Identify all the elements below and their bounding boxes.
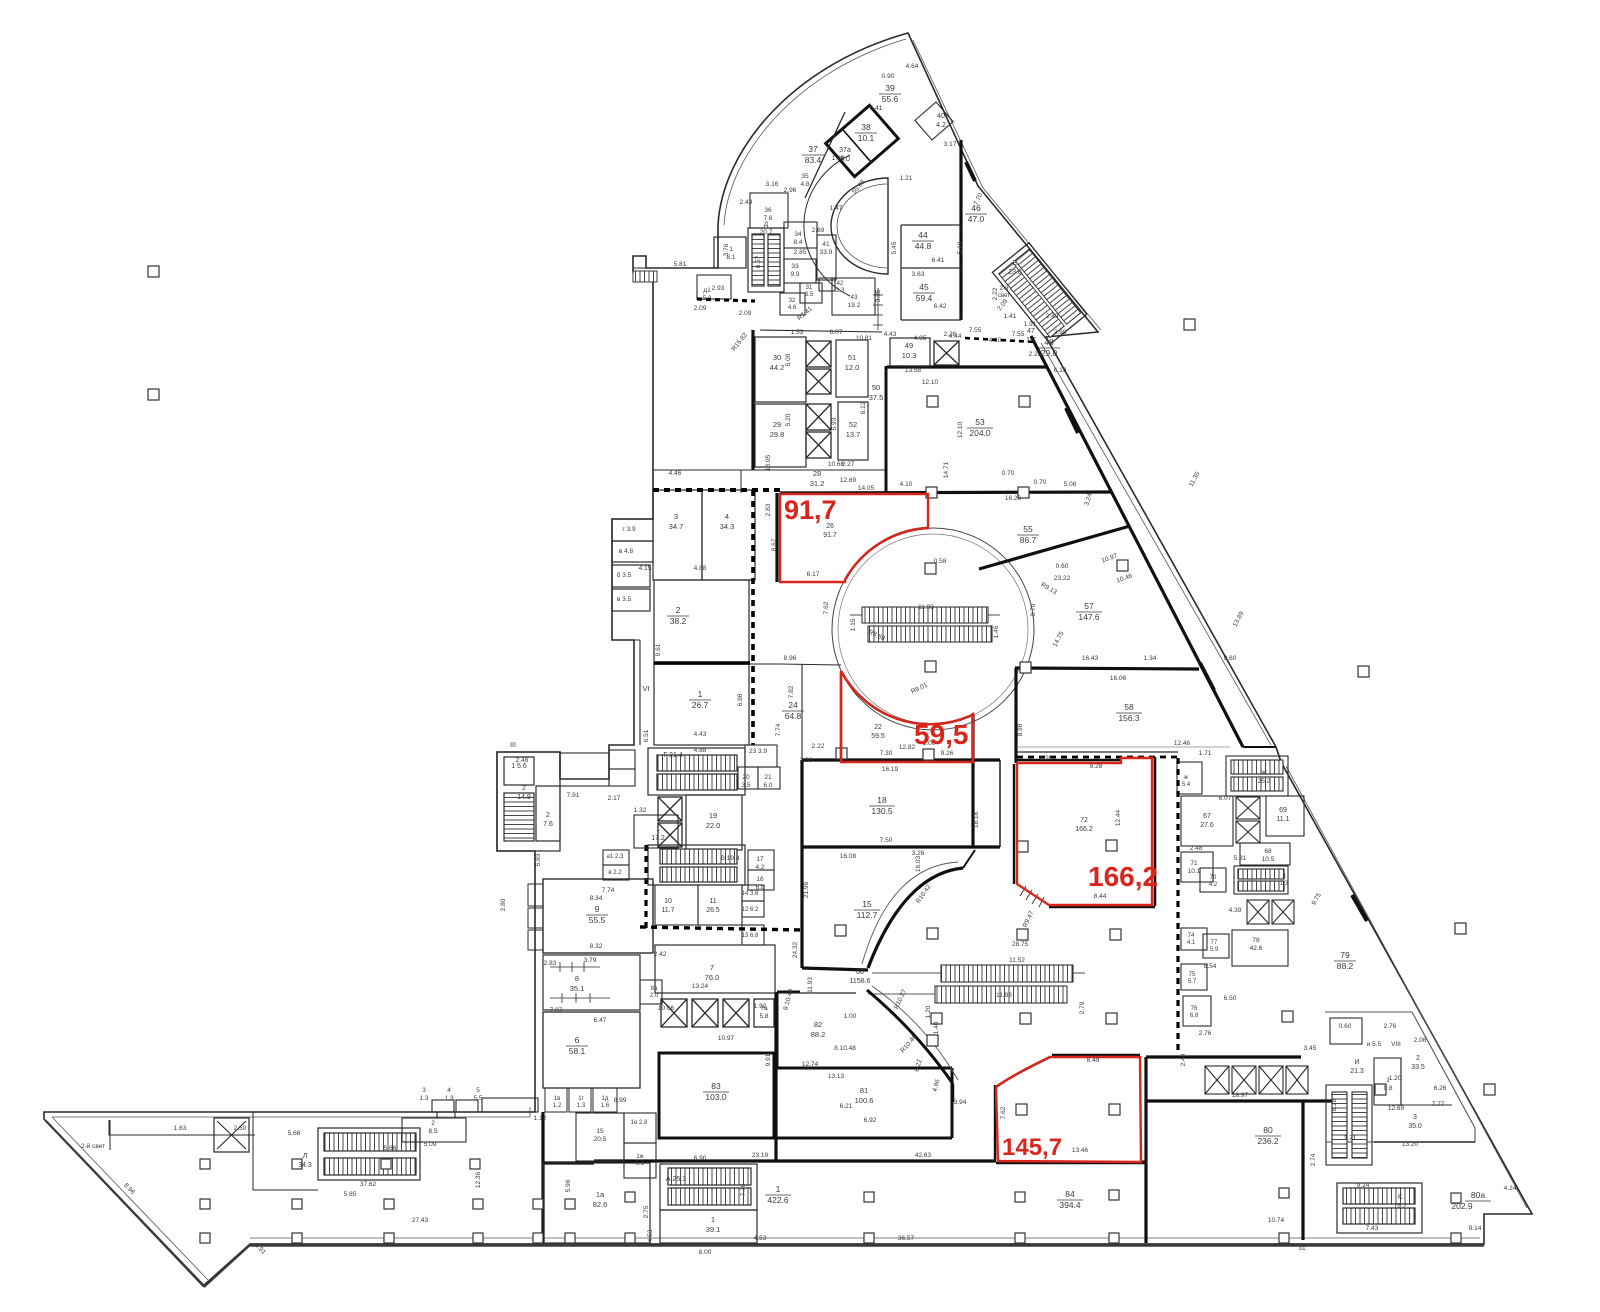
svg-text:2.48: 2.48 bbox=[1190, 845, 1203, 852]
svg-text:21.96: 21.96 bbox=[803, 881, 810, 898]
svg-text:64.8: 64.8 bbox=[785, 711, 802, 721]
svg-text:8.49: 8.49 bbox=[1087, 1057, 1100, 1064]
svg-text:2.09: 2.09 bbox=[739, 310, 752, 317]
svg-text:12.10: 12.10 bbox=[957, 421, 964, 438]
svg-text:4.95: 4.95 bbox=[914, 335, 927, 342]
svg-text:37.5: 37.5 bbox=[869, 393, 884, 402]
svg-text:3.16: 3.16 bbox=[766, 181, 779, 188]
svg-text:23.19: 23.19 bbox=[752, 1152, 769, 1159]
svg-text:4: 4 bbox=[447, 1087, 451, 1094]
svg-text:6.12: 6.12 bbox=[860, 401, 867, 414]
svg-text:47.0: 47.0 bbox=[968, 214, 985, 224]
svg-text:38.2: 38.2 bbox=[670, 616, 687, 626]
svg-text:7.82: 7.82 bbox=[788, 685, 795, 698]
svg-text:31.2: 31.2 bbox=[810, 479, 825, 488]
svg-text:20.5: 20.5 bbox=[594, 1136, 607, 1143]
svg-text:2.38: 2.38 bbox=[800, 757, 813, 764]
svg-text:III: III bbox=[510, 742, 516, 749]
svg-text:52: 52 bbox=[849, 420, 857, 429]
svg-text:8.4: 8.4 bbox=[793, 239, 802, 246]
svg-text:76: 76 bbox=[1191, 1006, 1198, 1012]
svg-text:9.91: 9.91 bbox=[765, 1053, 772, 1066]
svg-text:166,2: 166,2 bbox=[1088, 861, 1158, 892]
svg-text:2: 2 bbox=[431, 1120, 435, 1127]
svg-text:91.7: 91.7 bbox=[823, 532, 837, 539]
svg-text:1: 1 bbox=[698, 689, 703, 699]
svg-text:60: 60 bbox=[856, 969, 864, 976]
svg-text:7.55: 7.55 bbox=[1012, 331, 1025, 338]
svg-text:82: 82 bbox=[814, 1020, 822, 1029]
svg-text:2.49: 2.49 bbox=[1046, 313, 1059, 320]
svg-text:4: 4 bbox=[725, 512, 729, 521]
svg-text:19.2: 19.2 bbox=[848, 302, 861, 309]
svg-text:17: 17 bbox=[756, 856, 764, 863]
svg-text:42.6: 42.6 bbox=[1250, 945, 1263, 952]
svg-text:1.53: 1.53 bbox=[791, 329, 804, 336]
svg-text:4.1: 4.1 bbox=[1187, 940, 1196, 946]
svg-text:2: 2 bbox=[522, 785, 526, 792]
svg-text:53: 53 bbox=[975, 417, 985, 427]
svg-text:112.7: 112.7 bbox=[857, 910, 878, 920]
svg-text:2.50: 2.50 bbox=[234, 1125, 247, 1132]
svg-text:8.96: 8.96 bbox=[784, 655, 797, 662]
svg-text:2-й: 2-й bbox=[1000, 285, 1009, 292]
svg-text:7.62: 7.62 bbox=[1000, 1106, 1007, 1119]
svg-text:1а: 1а bbox=[596, 1190, 605, 1199]
svg-text:16.19: 16.19 bbox=[882, 766, 899, 773]
svg-text:70: 70 bbox=[1210, 875, 1217, 881]
svg-text:15: 15 bbox=[596, 1128, 604, 1135]
svg-text:10.1: 10.1 bbox=[1188, 868, 1201, 875]
svg-text:4.88: 4.88 bbox=[694, 565, 707, 572]
svg-text:34.3: 34.3 bbox=[298, 1162, 312, 1169]
svg-text:394.4: 394.4 bbox=[1059, 1200, 1081, 1210]
svg-text:5.45: 5.45 bbox=[891, 241, 898, 254]
svg-text:и 5.5: и 5.5 bbox=[1367, 1041, 1382, 1048]
svg-text:13.13: 13.13 bbox=[828, 1073, 845, 1080]
svg-text:32: 32 bbox=[789, 298, 796, 304]
svg-text:6.47: 6.47 bbox=[594, 1017, 607, 1024]
svg-text:6.0: 6.0 bbox=[763, 782, 772, 789]
svg-text:33: 33 bbox=[791, 263, 799, 270]
svg-text:3.5: 3.5 bbox=[805, 292, 814, 298]
svg-text:18.18: 18.18 bbox=[973, 811, 980, 828]
svg-text:86.7: 86.7 bbox=[1020, 535, 1037, 545]
svg-text:18.97: 18.97 bbox=[1232, 1092, 1249, 1099]
svg-text:B 19.4: B 19.4 bbox=[721, 855, 740, 862]
svg-text:34: 34 bbox=[794, 231, 802, 238]
svg-text:4.43: 4.43 bbox=[884, 331, 897, 338]
svg-text:27.43: 27.43 bbox=[412, 1217, 429, 1224]
svg-text:5.20: 5.20 bbox=[785, 413, 792, 426]
svg-text:5.3: 5.3 bbox=[702, 295, 711, 302]
svg-text:36: 36 bbox=[764, 207, 772, 214]
svg-text:5.66: 5.66 bbox=[384, 1145, 397, 1152]
svg-text:18.05: 18.05 bbox=[765, 454, 772, 471]
svg-text:8.54: 8.54 bbox=[1204, 963, 1217, 970]
svg-text:12.46: 12.46 bbox=[1174, 740, 1191, 747]
svg-text:9: 9 bbox=[595, 904, 600, 914]
svg-text:2.44: 2.44 bbox=[1180, 1053, 1187, 1066]
svg-text:4.43: 4.43 bbox=[694, 731, 707, 738]
svg-text:5.83: 5.83 bbox=[535, 853, 542, 866]
svg-text:83: 83 bbox=[711, 1081, 721, 1091]
svg-text:1.47: 1.47 bbox=[830, 205, 843, 212]
svg-text:2.76: 2.76 bbox=[1199, 1030, 1212, 1037]
svg-text:40: 40 bbox=[937, 113, 945, 120]
svg-text:5.8: 5.8 bbox=[759, 1013, 768, 1020]
svg-text:12.69: 12.69 bbox=[1388, 1105, 1405, 1112]
svg-text:1.00: 1.00 bbox=[844, 1013, 857, 1020]
svg-text:1.3: 1.3 bbox=[419, 1095, 428, 1102]
svg-text:Г 21.4: Г 21.4 bbox=[663, 752, 682, 759]
svg-text:6.41: 6.41 bbox=[870, 105, 883, 112]
svg-text:1: 1 bbox=[776, 1184, 781, 1194]
svg-text:6.51: 6.51 bbox=[643, 729, 650, 742]
svg-text:2-й свет: 2-й свет bbox=[81, 1142, 105, 1150]
svg-text:0.60: 0.60 bbox=[1056, 563, 1069, 570]
svg-text:6.50: 6.50 bbox=[1224, 995, 1237, 1002]
svg-text:24: 24 bbox=[788, 700, 798, 710]
svg-text:20.7: 20.7 bbox=[760, 229, 773, 236]
svg-text:6.90: 6.90 bbox=[694, 1155, 707, 1162]
svg-text:3.5: 3.5 bbox=[741, 782, 750, 789]
svg-text:5.08: 5.08 bbox=[1064, 481, 1077, 488]
svg-text:2: 2 bbox=[1416, 1055, 1420, 1062]
svg-text:91,7: 91,7 bbox=[784, 495, 837, 525]
svg-text:37.62: 37.62 bbox=[360, 1181, 377, 1188]
svg-text:ж: ж bbox=[1184, 775, 1188, 781]
svg-text:88.2: 88.2 bbox=[1337, 961, 1354, 971]
svg-text:69: 69 bbox=[1279, 807, 1287, 814]
svg-text:28.75: 28.75 bbox=[1012, 941, 1029, 948]
svg-text:И: И bbox=[1354, 1059, 1359, 1066]
svg-text:4.2: 4.2 bbox=[1209, 882, 1218, 888]
svg-text:9.14: 9.14 bbox=[1357, 1182, 1370, 1189]
svg-text:3.94: 3.94 bbox=[954, 1099, 967, 1106]
svg-text:44.8: 44.8 bbox=[915, 241, 932, 251]
svg-text:2.85: 2.85 bbox=[794, 249, 807, 256]
svg-text:5.5: 5.5 bbox=[473, 1095, 482, 1102]
svg-text:5.09: 5.09 bbox=[785, 353, 792, 366]
svg-text:3.76: 3.76 bbox=[723, 243, 730, 256]
svg-text:4.2: 4.2 bbox=[755, 864, 764, 871]
svg-text:236.2: 236.2 bbox=[1257, 1136, 1279, 1146]
svg-text:1.3: 1.3 bbox=[444, 1095, 453, 1102]
svg-text:8а: 8а bbox=[651, 986, 658, 992]
svg-text:44.2: 44.2 bbox=[770, 363, 785, 372]
svg-text:20: 20 bbox=[742, 774, 750, 781]
svg-text:39: 39 bbox=[885, 83, 895, 93]
svg-text:в 2.2: в 2.2 bbox=[608, 870, 622, 876]
svg-text:9.9: 9.9 bbox=[790, 271, 799, 278]
svg-text:5.19: 5.19 bbox=[957, 241, 964, 254]
svg-text:12.0: 12.0 bbox=[845, 363, 860, 372]
svg-text:47: 47 bbox=[1027, 328, 1035, 335]
svg-text:13.24: 13.24 bbox=[692, 983, 709, 990]
svg-text:100.6: 100.6 bbox=[855, 1096, 874, 1105]
svg-text:1в: 1в bbox=[554, 1096, 561, 1102]
svg-text:7: 7 bbox=[710, 963, 714, 972]
svg-text:4.10: 4.10 bbox=[989, 337, 1002, 344]
svg-text:23 3.9: 23 3.9 bbox=[749, 748, 767, 755]
svg-text:16.08: 16.08 bbox=[840, 853, 857, 860]
svg-text:12.69: 12.69 bbox=[840, 477, 857, 484]
svg-text:88.2: 88.2 bbox=[811, 1030, 826, 1039]
svg-text:8.98: 8.98 bbox=[1017, 723, 1024, 736]
svg-text:0.58: 0.58 bbox=[934, 558, 947, 565]
svg-text:76.0: 76.0 bbox=[705, 973, 720, 982]
svg-text:4.15: 4.15 bbox=[639, 565, 652, 572]
svg-text:42: 42 bbox=[837, 281, 844, 287]
svg-text:6: 6 bbox=[575, 1035, 580, 1045]
svg-text:2.17: 2.17 bbox=[608, 795, 621, 802]
svg-text:1: 1 bbox=[656, 826, 660, 833]
svg-text:1.7: 1.7 bbox=[1026, 337, 1036, 344]
svg-text:9.61: 9.61 bbox=[655, 643, 662, 656]
svg-text:1 5.6: 1 5.6 bbox=[511, 763, 527, 770]
svg-text:14.71: 14.71 bbox=[943, 461, 950, 478]
svg-text:39.1: 39.1 bbox=[706, 1225, 721, 1234]
svg-text:3: 3 bbox=[1413, 1114, 1417, 1121]
svg-text:84: 84 bbox=[1065, 1189, 1075, 1199]
svg-text:в 4.8: в 4.8 bbox=[619, 548, 634, 555]
svg-text:а1 2.3: а1 2.3 bbox=[607, 854, 624, 860]
svg-text:82.6: 82.6 bbox=[593, 1200, 608, 1209]
svg-text:13 6.8: 13 6.8 bbox=[742, 933, 759, 939]
svg-text:2: 2 bbox=[546, 812, 550, 819]
svg-text:8.67: 8.67 bbox=[771, 538, 778, 551]
svg-text:6.92: 6.92 bbox=[864, 1117, 877, 1124]
svg-text:16: 16 bbox=[756, 876, 764, 883]
svg-text:50: 50 bbox=[872, 383, 880, 392]
svg-text:67: 67 bbox=[1203, 813, 1211, 820]
svg-text:33.5: 33.5 bbox=[1411, 1064, 1425, 1071]
svg-text:8.99: 8.99 bbox=[614, 1097, 627, 1104]
svg-text:1.15: 1.15 bbox=[850, 618, 857, 631]
svg-text:29.8: 29.8 bbox=[770, 430, 785, 439]
svg-text:1.21: 1.21 bbox=[900, 175, 913, 182]
svg-text:2.22: 2.22 bbox=[992, 287, 999, 300]
svg-text:80а: 80а bbox=[1471, 1190, 1485, 1200]
svg-text:3.26: 3.26 bbox=[912, 850, 925, 857]
svg-text:10.1: 10.1 bbox=[858, 133, 875, 143]
svg-text:1.3: 1.3 bbox=[1280, 881, 1289, 887]
svg-text:103.0: 103.0 bbox=[705, 1092, 727, 1102]
svg-text:11: 11 bbox=[709, 898, 716, 905]
svg-text:14.9: 14.9 bbox=[517, 794, 531, 801]
svg-text:7.76: 7.76 bbox=[740, 1183, 747, 1196]
svg-text:45: 45 bbox=[919, 282, 929, 292]
svg-text:2: 2 bbox=[676, 605, 681, 615]
svg-text:78: 78 bbox=[1252, 937, 1260, 944]
svg-text:0.70: 0.70 bbox=[1002, 470, 1015, 477]
svg-text:5.96: 5.96 bbox=[565, 1179, 572, 1192]
svg-text:8.32: 8.32 bbox=[590, 943, 603, 950]
svg-text:1.40: 1.40 bbox=[933, 1021, 940, 1034]
svg-text:1г: 1г bbox=[578, 1096, 584, 1102]
svg-text:7.43: 7.43 bbox=[1366, 1225, 1379, 1232]
svg-text:9.26: 9.26 bbox=[941, 750, 954, 757]
svg-text:166.2: 166.2 bbox=[1075, 826, 1093, 833]
svg-text:5.4: 5.4 bbox=[1182, 782, 1191, 788]
svg-text:12.82: 12.82 bbox=[899, 744, 916, 751]
svg-text:23.8: 23.8 bbox=[1008, 269, 1022, 276]
svg-text:1.12: 1.12 bbox=[534, 1115, 547, 1122]
svg-text:13.20: 13.20 bbox=[1402, 1141, 1419, 1148]
svg-text:5.81: 5.81 bbox=[674, 261, 687, 268]
svg-text:д1: д1 bbox=[703, 287, 711, 294]
svg-text:34.7: 34.7 bbox=[669, 522, 684, 531]
svg-text:7.62: 7.62 bbox=[823, 601, 830, 614]
svg-text:77: 77 bbox=[1211, 940, 1218, 946]
svg-text:75: 75 bbox=[1189, 972, 1196, 978]
svg-text:4.44: 4.44 bbox=[949, 333, 962, 340]
svg-text:1.3: 1.3 bbox=[577, 1103, 586, 1109]
svg-text:3.28: 3.28 bbox=[1040, 755, 1053, 762]
svg-text:9.28: 9.28 bbox=[1090, 763, 1103, 770]
svg-text:0.60: 0.60 bbox=[1224, 655, 1237, 662]
svg-text:5: 5 bbox=[476, 1087, 480, 1094]
svg-text:VI: VI bbox=[642, 684, 649, 693]
svg-text:3: 3 bbox=[422, 1087, 426, 1094]
svg-text:49: 49 bbox=[905, 341, 913, 350]
svg-text:8.44: 8.44 bbox=[1094, 893, 1107, 900]
svg-text:17.2: 17.2 bbox=[651, 835, 665, 842]
svg-text:3.17: 3.17 bbox=[944, 141, 957, 148]
svg-text:1е 2.8: 1е 2.8 bbox=[631, 1120, 648, 1126]
svg-text:5.1: 5.1 bbox=[636, 1161, 645, 1167]
svg-text:3.35: 3.35 bbox=[875, 289, 882, 302]
svg-text:6.19: 6.19 bbox=[1054, 367, 1067, 374]
svg-text:41: 41 bbox=[822, 241, 830, 248]
svg-text:12.74: 12.74 bbox=[802, 1061, 819, 1068]
svg-text:1ж: 1ж bbox=[636, 1154, 643, 1160]
svg-text:7.30: 7.30 bbox=[880, 750, 893, 757]
svg-text:2.27: 2.27 bbox=[842, 461, 855, 468]
svg-text:81: 81 bbox=[860, 1086, 868, 1095]
svg-text:11.98: 11.98 bbox=[996, 992, 1012, 999]
svg-text:147.6: 147.6 bbox=[1078, 612, 1100, 622]
svg-text:2.74: 2.74 bbox=[1310, 1153, 1317, 1166]
svg-text:16.26: 16.26 bbox=[1005, 495, 1022, 502]
svg-text:80: 80 bbox=[1263, 1125, 1273, 1135]
svg-text:1.2: 1.2 bbox=[553, 1103, 562, 1109]
svg-text:10.66: 10.66 bbox=[658, 1005, 675, 1012]
svg-text:51: 51 bbox=[848, 353, 856, 362]
svg-text:1: 1 bbox=[711, 1215, 715, 1224]
svg-text:6.41: 6.41 bbox=[932, 257, 945, 264]
svg-text:6.57: 6.57 bbox=[755, 255, 762, 268]
svg-text:0.60: 0.60 bbox=[1339, 1023, 1352, 1030]
svg-text:А 25.3: А 25.3 bbox=[666, 1176, 686, 1183]
svg-text:2.22: 2.22 bbox=[812, 743, 825, 750]
svg-text:VIII: VIII bbox=[1391, 1041, 1401, 1048]
svg-text:6.42: 6.42 bbox=[934, 303, 947, 310]
svg-text:1д: 1д bbox=[602, 1096, 609, 1102]
svg-text:0.70: 0.70 bbox=[1034, 479, 1047, 486]
svg-text:9.8: 9.8 bbox=[1383, 1085, 1392, 1092]
svg-text:7.55: 7.55 bbox=[969, 327, 982, 334]
svg-text:13.58: 13.58 bbox=[905, 367, 922, 374]
svg-text:1.20: 1.20 bbox=[1389, 1075, 1402, 1082]
svg-text:156.3: 156.3 bbox=[1118, 713, 1140, 723]
svg-text:3.45: 3.45 bbox=[1304, 1045, 1317, 1052]
svg-text:26.5: 26.5 bbox=[706, 907, 720, 914]
svg-text:21: 21 bbox=[764, 774, 772, 781]
svg-text:3.71: 3.71 bbox=[1344, 1135, 1357, 1142]
svg-text:14 3.6: 14 3.6 bbox=[742, 891, 759, 897]
svg-text:1.86: 1.86 bbox=[832, 155, 845, 162]
svg-text:37: 37 bbox=[808, 144, 818, 154]
svg-text:2.26: 2.26 bbox=[1029, 351, 1042, 358]
svg-text:Л: Л bbox=[303, 1153, 308, 1160]
svg-text:422.6: 422.6 bbox=[767, 1195, 789, 1205]
svg-text:2.46: 2.46 bbox=[516, 757, 529, 764]
svg-text:59.4: 59.4 bbox=[916, 293, 933, 303]
svg-text:1.34: 1.34 bbox=[1144, 655, 1157, 662]
svg-text:4.24: 4.24 bbox=[1504, 1185, 1517, 1192]
svg-text:4.39: 4.39 bbox=[1229, 907, 1242, 914]
svg-text:11.93: 11.93 bbox=[807, 977, 814, 993]
svg-text:26.7: 26.7 bbox=[692, 700, 709, 710]
svg-text:13.46: 13.46 bbox=[1072, 1147, 1089, 1154]
svg-text:10.3: 10.3 bbox=[902, 351, 917, 360]
svg-text:7.87: 7.87 bbox=[550, 1007, 563, 1014]
svg-text:19.2: 19.2 bbox=[1393, 1203, 1407, 1210]
svg-text:10.74: 10.74 bbox=[1268, 1217, 1285, 1224]
svg-text:Е: Е bbox=[1013, 260, 1018, 267]
svg-text:2.0: 2.0 bbox=[650, 993, 659, 999]
svg-text:71: 71 bbox=[1190, 860, 1198, 867]
svg-text:4.6: 4.6 bbox=[788, 305, 797, 311]
svg-text:25.2: 25.2 bbox=[1258, 778, 1271, 785]
svg-text:36.57: 36.57 bbox=[898, 1235, 915, 1242]
svg-text:1.20: 1.20 bbox=[925, 1005, 932, 1018]
svg-text:6.21: 6.21 bbox=[840, 1103, 853, 1110]
svg-text:12.44: 12.44 bbox=[1115, 809, 1122, 826]
svg-text:9.14: 9.14 bbox=[1469, 1225, 1482, 1232]
svg-text:202.9: 202.9 bbox=[1451, 1201, 1473, 1211]
svg-text:11.1: 11.1 bbox=[1276, 816, 1289, 823]
svg-text:6.17: 6.17 bbox=[807, 571, 820, 578]
svg-text:42.63: 42.63 bbox=[915, 1152, 932, 1159]
svg-text:55.5: 55.5 bbox=[589, 915, 606, 925]
svg-text:58: 58 bbox=[1124, 702, 1134, 712]
svg-text:7.50: 7.50 bbox=[880, 837, 893, 844]
svg-text:22: 22 bbox=[874, 724, 882, 731]
svg-text:8.28: 8.28 bbox=[1331, 1098, 1338, 1111]
svg-text:2.42: 2.42 bbox=[654, 951, 667, 958]
svg-text:4.2: 4.2 bbox=[936, 122, 946, 129]
svg-text:24.32: 24.32 bbox=[792, 941, 799, 958]
svg-text:1.71: 1.71 bbox=[1199, 750, 1212, 757]
svg-text:38: 38 bbox=[861, 122, 871, 132]
svg-text:13.7: 13.7 bbox=[846, 430, 861, 439]
svg-text:19: 19 bbox=[709, 811, 717, 820]
svg-text:43: 43 bbox=[850, 294, 858, 301]
svg-text:12.10: 12.10 bbox=[922, 379, 939, 386]
svg-text:7.6: 7.6 bbox=[763, 215, 772, 222]
svg-text:15: 15 bbox=[862, 899, 872, 909]
svg-text:2.83: 2.83 bbox=[765, 503, 772, 516]
svg-text:5.31: 5.31 bbox=[1234, 855, 1247, 862]
svg-text:2.75: 2.75 bbox=[643, 1205, 650, 1218]
svg-text:145,7: 145,7 bbox=[1002, 1134, 1062, 1161]
svg-text:г 3.9: г 3.9 bbox=[622, 526, 636, 533]
svg-text:1.6: 1.6 bbox=[601, 1103, 610, 1109]
svg-text:1158.6: 1158.6 bbox=[850, 978, 871, 985]
